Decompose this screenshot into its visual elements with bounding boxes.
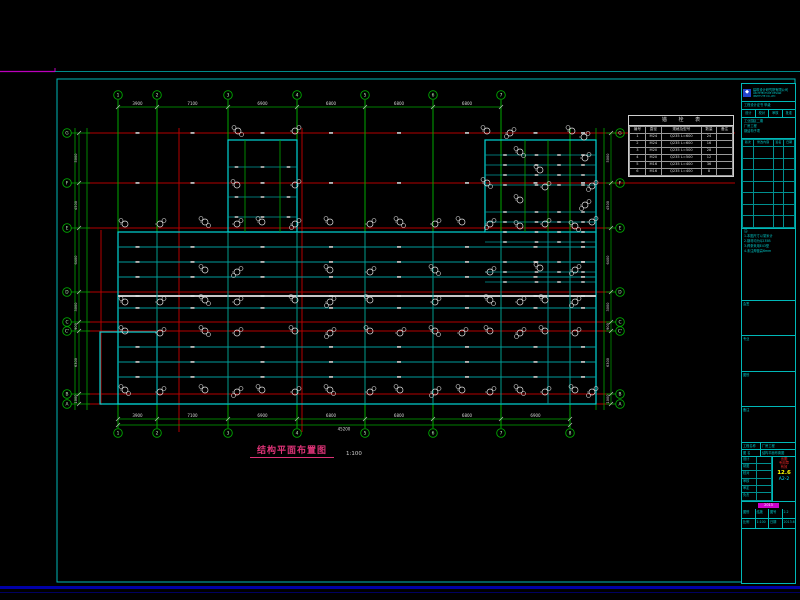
revision-row xyxy=(743,216,795,228)
revision-row xyxy=(743,193,795,205)
svg-text:6800: 6800 xyxy=(394,101,405,106)
svg-text:6800: 6800 xyxy=(394,413,405,418)
svg-text:6800: 6800 xyxy=(462,413,473,418)
schedule-title: 锚 栓 表 xyxy=(629,116,733,126)
svg-text:3: 3 xyxy=(227,93,230,99)
project-label: 工程名称 xyxy=(742,443,761,449)
svg-text:6: 6 xyxy=(432,431,435,437)
stamp-column: 出图专用章有效 12.6 A2-2 xyxy=(773,457,795,501)
note-line: 4.未注焊缝高6mm xyxy=(742,249,795,254)
sheet-info-row: 比例1:100日期2013.6 xyxy=(742,519,795,529)
revision-row xyxy=(743,158,795,170)
revision-table: 版次修改内容签名日期 xyxy=(742,139,795,229)
svg-text:G: G xyxy=(618,131,622,137)
signers-column: 设计制图校对审核审定负责 xyxy=(742,457,773,501)
schedule-row: 2M24Q235 L=60016 xyxy=(630,140,733,147)
sheet-number: A2-2 xyxy=(773,477,795,483)
svg-text:7: 7 xyxy=(500,93,503,99)
yellow-date: 12.6 xyxy=(773,470,795,477)
company-name-en: ARCHITECTURE DESIGN INSTITUTE CO.,LTD xyxy=(753,92,794,98)
approval-header-row: 设计校对审核批准 xyxy=(742,110,795,118)
schedule-header: 直径 xyxy=(645,127,661,134)
svg-text:6300: 6300 xyxy=(606,358,610,367)
svg-text:1000: 1000 xyxy=(606,395,610,404)
signer-row: 校对 xyxy=(742,471,772,478)
svg-text:6800: 6800 xyxy=(326,413,337,418)
svg-text:E: E xyxy=(619,226,622,232)
svg-text:6800: 6800 xyxy=(326,101,337,106)
svg-text:A: A xyxy=(65,402,68,408)
drawing-label: 图 名 xyxy=(742,450,761,456)
svg-text:G: G xyxy=(65,131,69,137)
svg-text:1: 1 xyxy=(117,93,120,99)
drawing-scale: 1:100 xyxy=(346,451,362,458)
schedule-row: 5M16Q235 L=40036 xyxy=(630,161,733,168)
signer-row: 制图 xyxy=(742,464,772,471)
svg-text:3900: 3900 xyxy=(132,413,143,418)
svg-text:900: 900 xyxy=(74,323,78,330)
signer-row: 负责 xyxy=(742,493,772,500)
svg-text:45200: 45200 xyxy=(338,427,351,432)
signature-box: 备注 xyxy=(742,407,795,443)
svg-text:C: C xyxy=(65,320,68,326)
sheet-info-row: 图别结施图号2.2 xyxy=(742,509,795,519)
signer-row: 审核 xyxy=(742,479,772,486)
svg-text:4500: 4500 xyxy=(74,201,78,210)
company-logo-icon: ◆ xyxy=(743,89,751,97)
revision-row xyxy=(743,170,795,182)
magenta-stamp: 2013 xyxy=(758,503,779,508)
svg-text:3000: 3000 xyxy=(74,303,78,312)
schedule-header: 编号 xyxy=(630,127,646,134)
signer-row: 设计 xyxy=(742,457,772,464)
drawing-value: 结构平面布置图 xyxy=(761,450,795,456)
svg-text:A: A xyxy=(618,402,621,408)
approval-cell: 审核 xyxy=(769,110,783,117)
svg-text:6900: 6900 xyxy=(530,413,541,418)
certificate-line: 工程设计证书 甲级 xyxy=(742,102,795,110)
svg-text:F: F xyxy=(619,181,622,187)
cad-drawing-viewport[interactable]: 3900710069006800680068003900710069006800… xyxy=(0,0,800,600)
schedule-table: 锚 栓 表 编号直径规格及型号数量备注 1M24Q235 L=600242M24… xyxy=(628,115,734,177)
drawing-title-text: 结构平面布置图 xyxy=(250,443,334,458)
info-table: 工程名称厂房工程 图 名结构平面布置图 设计制图校对审核审定负责 出图专用章有效… xyxy=(742,443,795,538)
company-row: ◆ 建筑设计研究院有限公司 ARCHITECTURE DESIGN INSTIT… xyxy=(742,84,795,102)
company-name: 建筑设计研究院有限公司 xyxy=(753,88,794,92)
svg-text:C': C' xyxy=(65,329,69,335)
drawing-title: 结构平面布置图 1:100 xyxy=(250,443,362,458)
schedule-row: 4M20Q235 L=50012 xyxy=(630,154,733,161)
schedule-row: 1M24Q235 L=60024 xyxy=(630,133,733,140)
svg-text:5: 5 xyxy=(364,93,367,99)
schedule-grid: 编号直径规格及型号数量备注 1M24Q235 L=600242M24Q235 L… xyxy=(629,126,733,176)
title-block: ◆ 建筑设计研究院有限公司 ARCHITECTURE DESIGN INSTIT… xyxy=(741,83,796,584)
project-value: 厂房工程 xyxy=(761,443,795,449)
project-lines: 工业园区二期厂房工程钢结构子项 xyxy=(742,118,795,139)
svg-text:6400: 6400 xyxy=(606,256,610,265)
revision-row xyxy=(743,204,795,216)
approval-cell: 设计 xyxy=(742,110,756,117)
svg-text:F: F xyxy=(66,181,69,187)
svg-text:1000: 1000 xyxy=(74,395,78,404)
svg-text:1: 1 xyxy=(117,431,120,437)
svg-text:6800: 6800 xyxy=(462,101,473,106)
signature-box: 会签 xyxy=(742,301,795,337)
schedule-header: 备注 xyxy=(717,127,733,134)
signature-box: 图别 xyxy=(742,372,795,408)
svg-text:7100: 7100 xyxy=(187,413,198,418)
schedule-row: 6M16Q235 L=4008 xyxy=(630,168,733,175)
approval-cell: 校对 xyxy=(756,110,770,117)
schedule-row: 3M20Q235 L=50028 xyxy=(630,147,733,154)
svg-text:C': C' xyxy=(618,329,622,335)
svg-text:6: 6 xyxy=(432,93,435,99)
svg-text:D: D xyxy=(65,290,69,296)
svg-text:5000: 5000 xyxy=(606,154,610,163)
signature-box: 专业 xyxy=(742,336,795,372)
svg-text:7: 7 xyxy=(500,431,503,437)
revision-row xyxy=(743,147,795,159)
svg-text:2: 2 xyxy=(156,431,159,437)
cad-canvas: { "colors":{"bg":"#000000","frame":"#00b… xyxy=(0,0,800,600)
svg-text:B: B xyxy=(65,392,68,398)
svg-text:3900: 3900 xyxy=(132,101,143,106)
svg-text:D: D xyxy=(618,290,622,296)
schedule-header: 规格及型号 xyxy=(662,127,702,134)
svg-text:4: 4 xyxy=(296,431,299,437)
svg-text:E: E xyxy=(66,226,69,232)
signature-boxes: 会签专业图别备注 xyxy=(742,301,795,443)
svg-text:3000: 3000 xyxy=(606,303,610,312)
svg-text:B: B xyxy=(618,392,621,398)
svg-text:5: 5 xyxy=(364,431,367,437)
svg-text:7100: 7100 xyxy=(187,101,198,106)
svg-text:5000: 5000 xyxy=(74,154,78,163)
notes-block: 注:1.本图尺寸以毫米计2.钢材均为Q235B3.焊条采用E43型4.未注焊缝高… xyxy=(742,229,795,301)
sheet-rows: 图别结施图号2.2比例1:100日期2013.6 xyxy=(742,509,795,529)
svg-text:6300: 6300 xyxy=(74,358,78,367)
schedule-header: 数量 xyxy=(701,127,717,134)
svg-text:4500: 4500 xyxy=(606,201,610,210)
svg-text:6900: 6900 xyxy=(257,413,268,418)
project-line: 钢结构子项 xyxy=(742,128,795,133)
signer-row: 审定 xyxy=(742,486,772,493)
svg-text:2: 2 xyxy=(156,93,159,99)
svg-text:900: 900 xyxy=(606,323,610,330)
svg-text:6400: 6400 xyxy=(74,256,78,265)
svg-text:8: 8 xyxy=(569,431,572,437)
approval-cell: 批准 xyxy=(783,110,796,117)
svg-text:C: C xyxy=(618,320,621,326)
svg-text:3: 3 xyxy=(227,431,230,437)
svg-text:4: 4 xyxy=(296,93,299,99)
red-stamp-text: 出图专用章有效 xyxy=(773,457,795,470)
revision-row xyxy=(743,181,795,193)
svg-text:6900: 6900 xyxy=(257,101,268,106)
revision-header: 版次修改内容签名日期 xyxy=(743,140,795,147)
